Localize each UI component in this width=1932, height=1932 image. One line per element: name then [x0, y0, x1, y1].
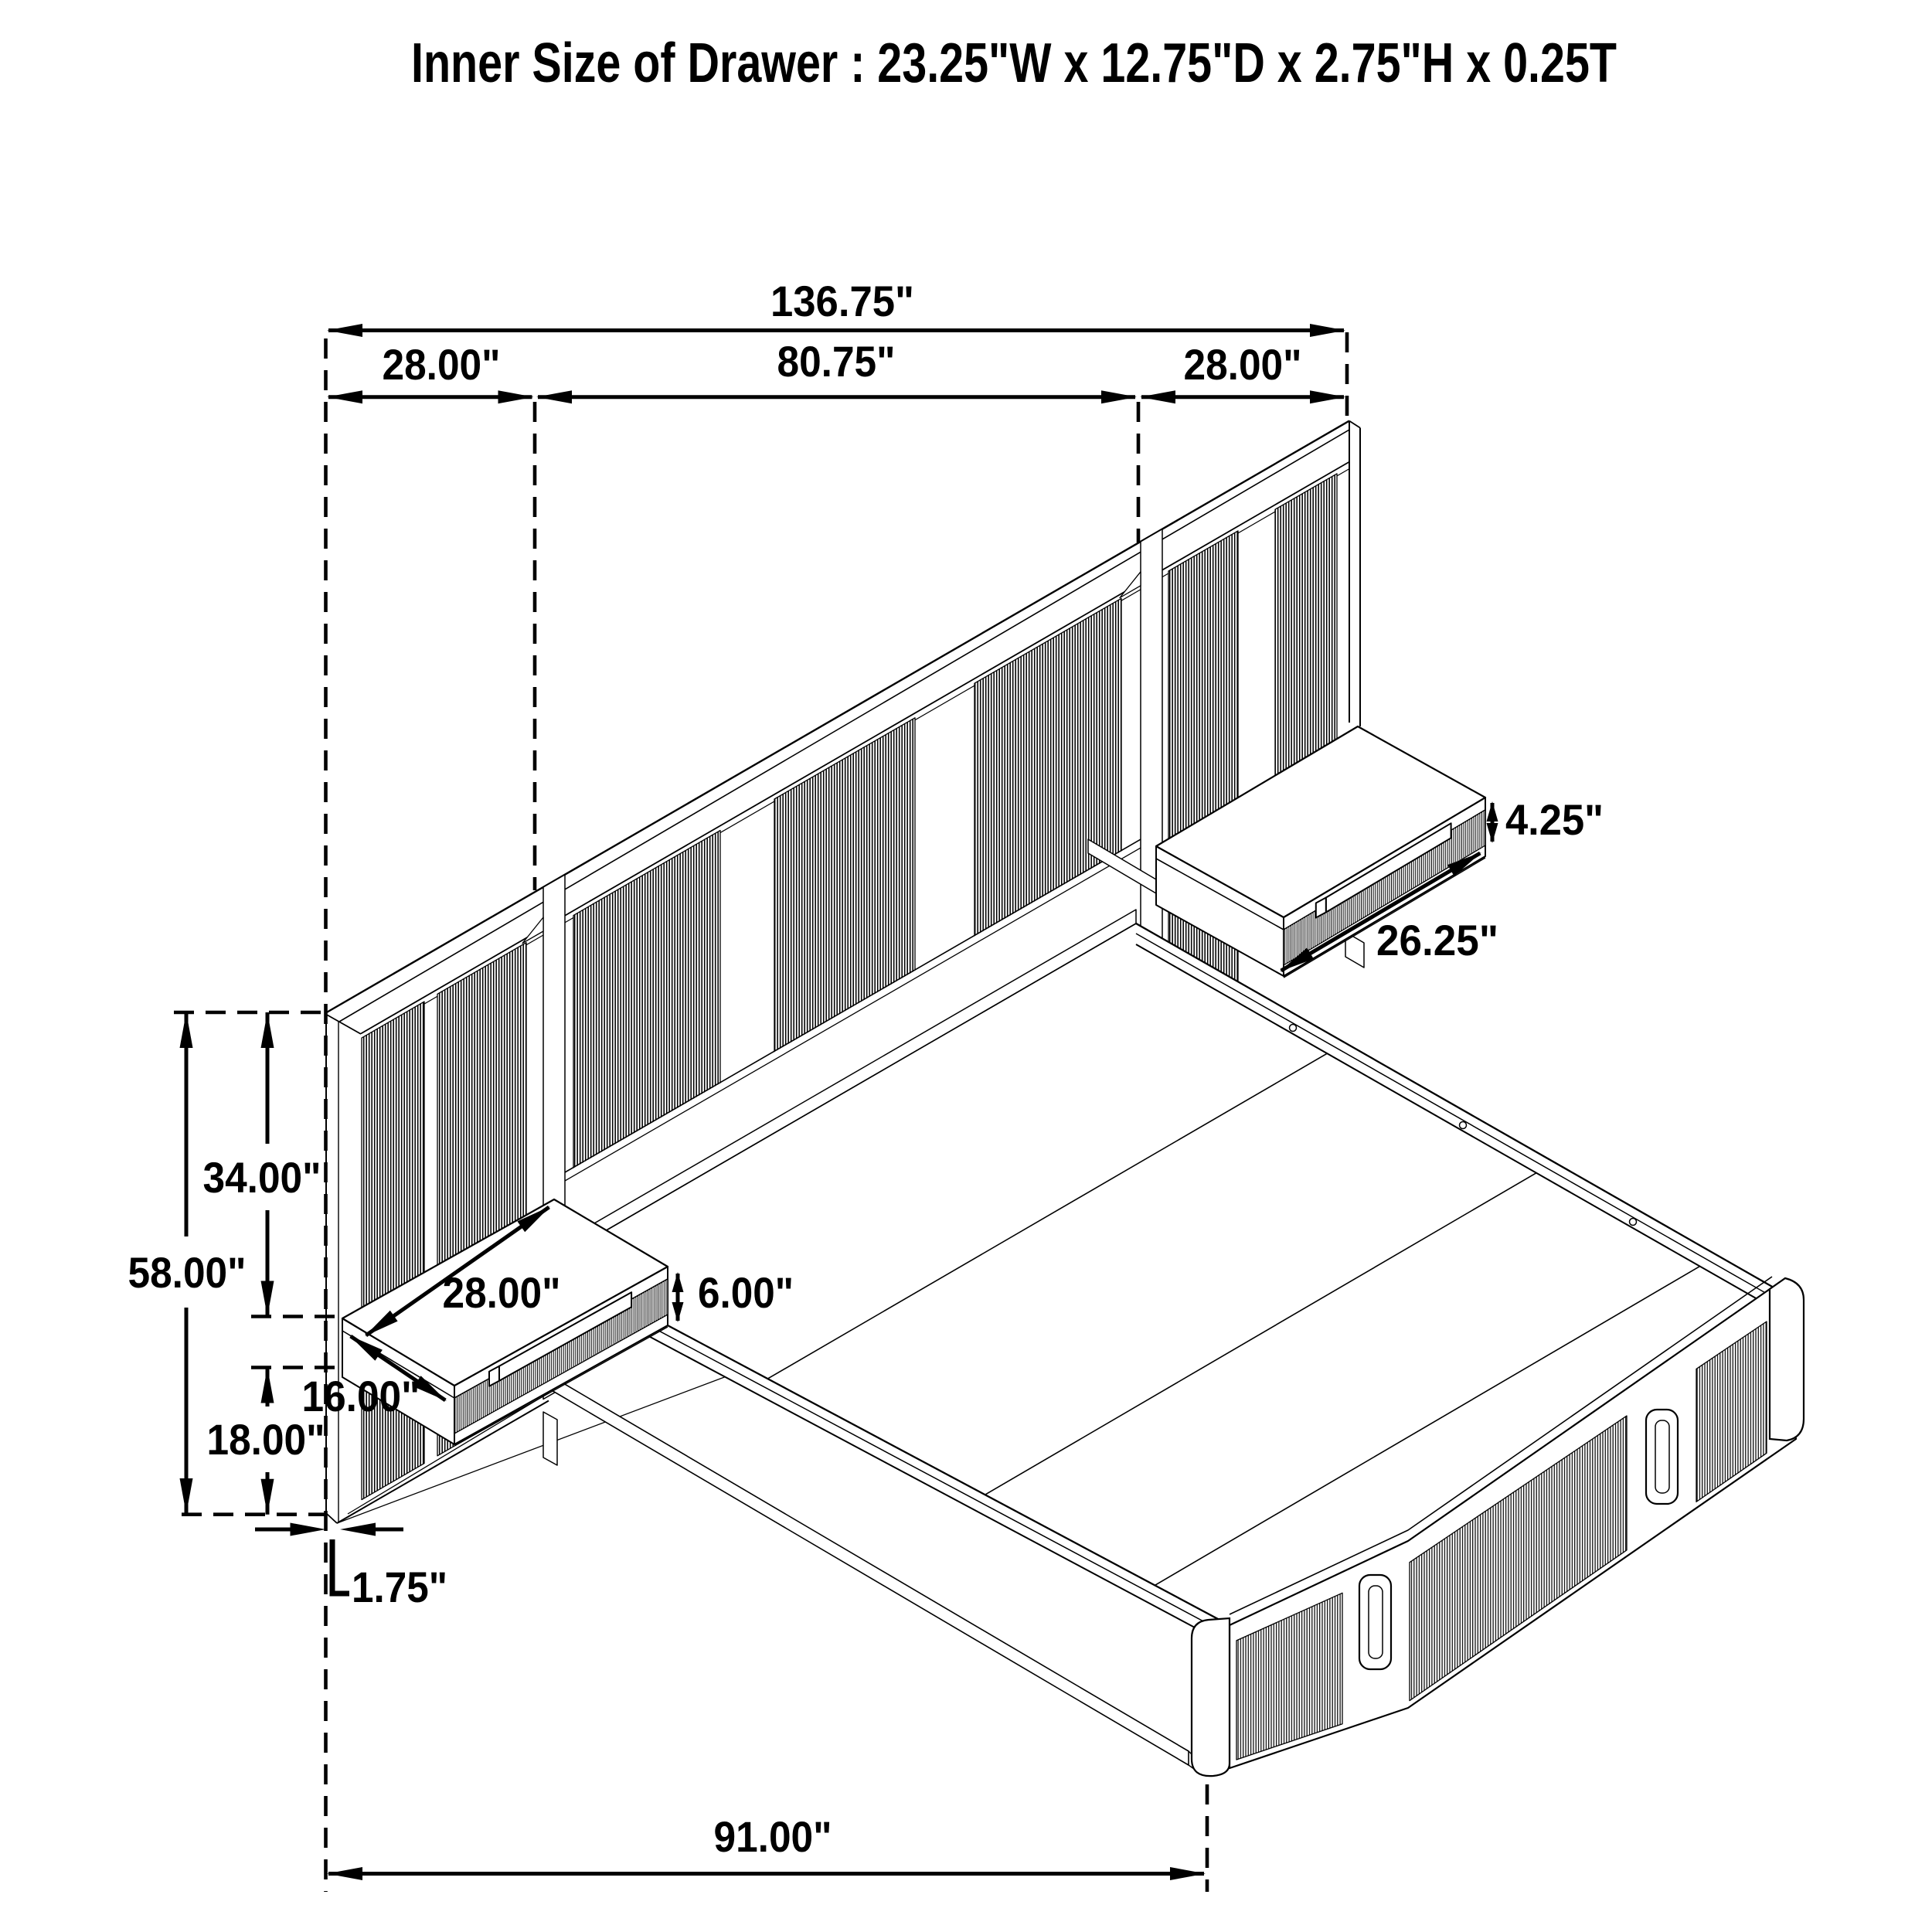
- svg-text:28.00": 28.00": [383, 340, 501, 389]
- svg-text:6.00": 6.00": [698, 1268, 794, 1317]
- svg-text:91.00": 91.00": [714, 1812, 832, 1861]
- svg-text:80.75": 80.75": [777, 337, 896, 386]
- svg-text:18.00": 18.00": [207, 1415, 325, 1464]
- svg-text:1.75": 1.75": [352, 1563, 447, 1611]
- svg-text:28.00": 28.00": [1184, 340, 1302, 389]
- svg-text:58.00": 58.00": [128, 1248, 247, 1297]
- svg-text:28.00": 28.00": [443, 1268, 561, 1317]
- svg-text:16.00": 16.00": [302, 1372, 420, 1420]
- svg-text:34.00": 34.00": [203, 1153, 321, 1202]
- svg-text:136.75": 136.75": [770, 277, 914, 325]
- svg-text:Inner Size of Drawer : 23.25"W: Inner Size of Drawer : 23.25"W x 12.75"D…: [411, 32, 1617, 94]
- svg-text:26.25": 26.25": [1376, 916, 1498, 964]
- svg-text:4.25": 4.25": [1505, 795, 1604, 844]
